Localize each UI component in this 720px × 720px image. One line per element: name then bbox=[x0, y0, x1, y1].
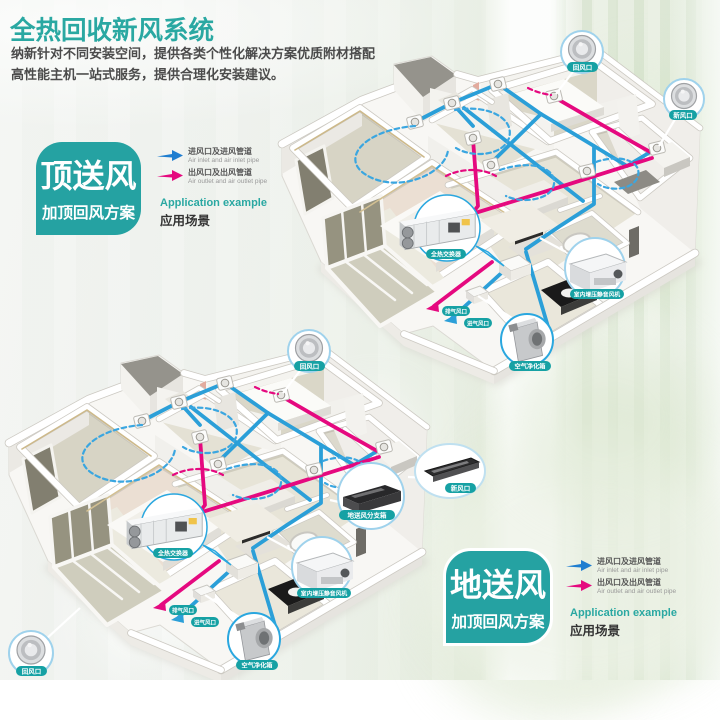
svg-text:回风口: 回风口 bbox=[573, 63, 593, 72]
svg-text:进气风口: 进气风口 bbox=[194, 619, 216, 627]
svg-text:回风口: 回风口 bbox=[22, 667, 42, 676]
svg-text:排气风口: 排气风口 bbox=[445, 308, 467, 316]
svg-text:回风口: 回风口 bbox=[300, 362, 320, 371]
svg-text:地送风分支箱: 地送风分支箱 bbox=[348, 511, 388, 520]
svg-text:新风口: 新风口 bbox=[451, 484, 471, 493]
svg-text:全热交换器: 全热交换器 bbox=[430, 251, 462, 259]
svg-text:全热交换器: 全热交换器 bbox=[157, 550, 189, 558]
svg-text:排气风口: 排气风口 bbox=[172, 607, 194, 615]
svg-text:进气风口: 进气风口 bbox=[467, 320, 489, 328]
svg-text:室内增压静音风机: 室内增压静音风机 bbox=[574, 291, 621, 299]
svg-text:新风口: 新风口 bbox=[673, 111, 693, 120]
svg-text:空气净化箱: 空气净化箱 bbox=[242, 662, 273, 670]
svg-text:室内增压静音风机: 室内增压静音风机 bbox=[301, 590, 348, 598]
svg-text:空气净化箱: 空气净化箱 bbox=[515, 363, 546, 371]
